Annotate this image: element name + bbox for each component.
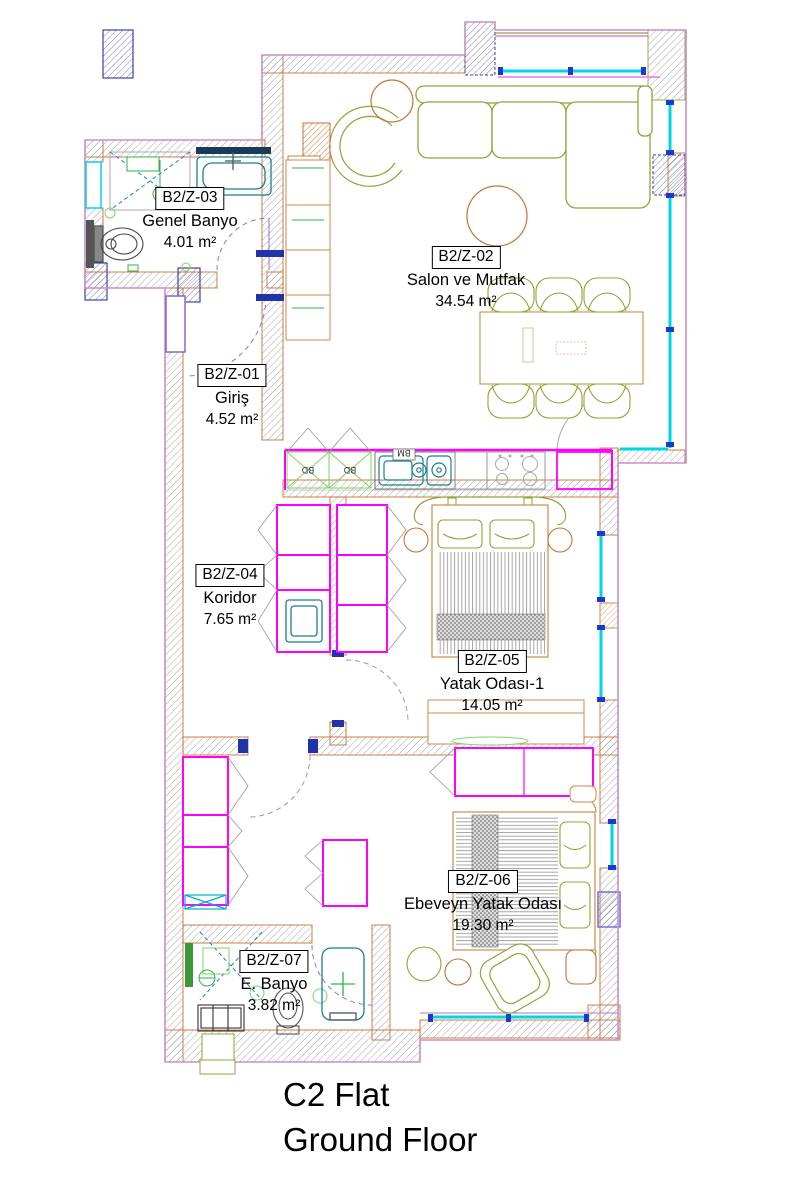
room-name: Yatak Odası-1 <box>440 674 544 695</box>
nightstand <box>570 786 596 802</box>
dining-table <box>480 312 643 384</box>
washbasin <box>322 948 364 1020</box>
room-area: 34.54 m² <box>407 292 525 312</box>
room-label-ebeveyn-yatak-odasi: B2/Z-06 Ebeveyn Yatak Odası 19.30 m² <box>404 870 562 936</box>
armchair <box>330 106 402 186</box>
floor-plan-drawing: BD BD BM <box>0 0 800 1200</box>
plan-title-line1: C2 Flat <box>283 1072 477 1117</box>
room-area: 14.05 m² <box>440 696 544 716</box>
room-area: 4.01 m² <box>142 233 237 253</box>
bottom-details <box>200 1034 235 1074</box>
corridor-wardrobes <box>258 505 330 652</box>
sofa <box>416 86 652 208</box>
towel-radiator <box>86 220 94 268</box>
room-name: Koridor <box>195 588 264 609</box>
room-label-giris: B2/Z-01 Giriş 4.52 m² <box>197 364 266 430</box>
room-label-yatak-odasi-1: B2/Z-05 Yatak Odası-1 14.05 m² <box>440 650 544 716</box>
room-code: B2/Z-07 <box>239 950 308 973</box>
wall-cabinet <box>286 160 330 340</box>
room-area: 19.30 m² <box>404 916 562 936</box>
room-name: Salon ve Mutfak <box>407 270 525 291</box>
ottoman-table <box>467 186 527 246</box>
radiator <box>198 1005 244 1031</box>
floor-plan: BD BD BM <box>0 0 800 1200</box>
nightstand <box>404 528 428 552</box>
bed1-band <box>437 614 545 640</box>
toilet <box>94 226 143 262</box>
room-code: B2/Z-03 <box>155 187 224 210</box>
room-label-salon: B2/Z-02 Salon ve Mutfak 34.54 m² <box>407 246 525 312</box>
cabinet-label-bd-1: BD <box>301 465 314 475</box>
room-area: 4.52 m² <box>197 410 266 430</box>
room-code: B2/Z-01 <box>197 364 266 387</box>
room-name: Giriş <box>197 388 266 409</box>
room-code: B2/Z-04 <box>195 564 264 587</box>
pouf <box>407 947 441 981</box>
side-table <box>445 959 471 985</box>
sink-label-bm: BM <box>397 448 411 458</box>
room-name: E. Banyo <box>239 974 308 995</box>
room-name: Ebeveyn Yatak Odası <box>404 894 562 915</box>
nightstand <box>566 950 596 984</box>
cabinet-label-bd-2: BD <box>343 465 356 475</box>
room-code: B2/Z-05 <box>457 650 526 673</box>
room-name: Genel Banyo <box>142 211 237 232</box>
towel-radiator <box>185 943 193 987</box>
plan-title: C2 Flat Ground Floor <box>283 1072 477 1162</box>
room-label-koridor: B2/Z-04 Koridor 7.65 m² <box>195 564 264 630</box>
plan-title-line2: Ground Floor <box>283 1117 477 1162</box>
nightstand <box>548 528 572 552</box>
room-label-genel-banyo: B2/Z-03 Genel Banyo 4.01 m² <box>142 187 237 253</box>
master-armchair <box>475 939 554 1018</box>
cabinet-door-swings <box>287 428 371 452</box>
entry-door-panel <box>166 296 185 352</box>
room-code: B2/Z-06 <box>448 870 517 893</box>
room-area: 3.82 m² <box>239 996 308 1016</box>
room-label-e-banyo: B2/Z-07 E. Banyo 3.82 m² <box>239 950 308 1016</box>
room-code: B2/Z-02 <box>431 246 500 269</box>
bed1-blanket <box>437 552 545 614</box>
side-table <box>371 80 413 122</box>
room-area: 7.65 m² <box>195 610 264 630</box>
bedroom1-wardrobe <box>337 505 406 652</box>
